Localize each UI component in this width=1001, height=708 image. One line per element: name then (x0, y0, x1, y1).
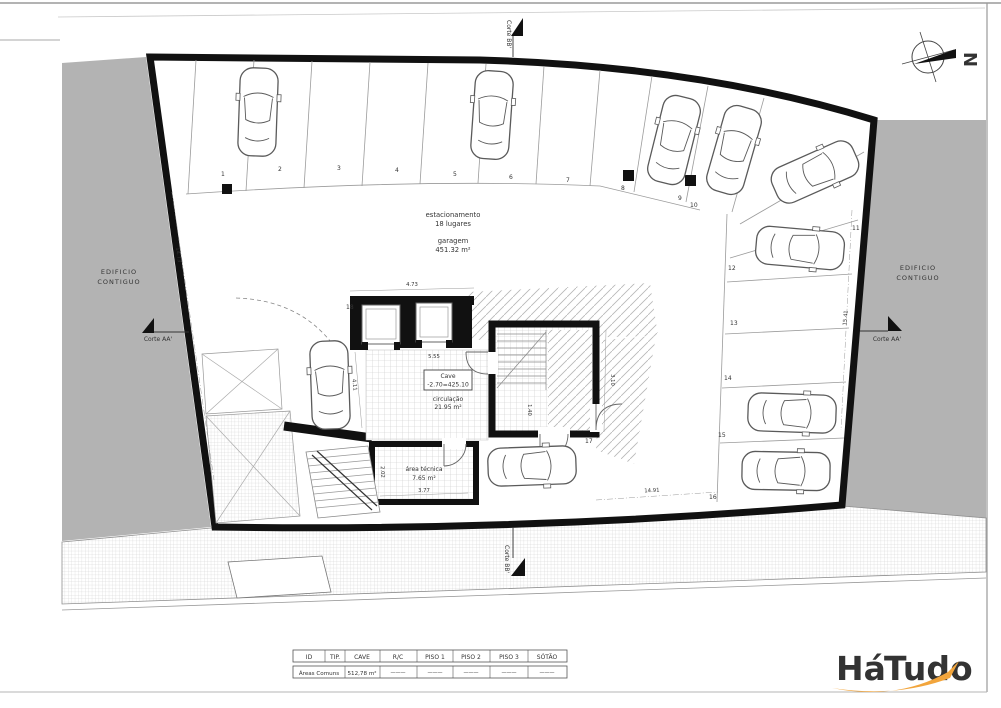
elevator-door-jamb (416, 340, 422, 348)
table-row-label: Áreas Comuns (299, 670, 339, 677)
elevator-cab-1 (362, 305, 400, 344)
space-number: 5 (453, 171, 457, 178)
circulation-area: Cave -2.70=425.10 circulação 21.95 m² (366, 350, 488, 440)
table-empty-cell: ——— (391, 670, 406, 676)
space-number: 2 (278, 166, 282, 173)
car (306, 340, 354, 430)
dim-corridor: 1.40 (526, 404, 532, 416)
driveway-apron (228, 556, 331, 598)
table-empty-cell: ——— (502, 670, 517, 676)
space-number: 1 (221, 171, 225, 178)
north-pointer (914, 49, 956, 64)
label-garagem-area: 451.32 m² (435, 246, 471, 254)
dim-below-elevators: 5.55 (428, 354, 440, 360)
label-corte-bb-top: Corte BB' (505, 20, 512, 49)
column (222, 184, 232, 194)
label-corte-aa-left: Corte AA' (144, 336, 173, 343)
table-header-tip: TIP. (329, 654, 340, 661)
label-cave-level: -2.70=425.10 (427, 382, 469, 389)
door-opening (538, 427, 570, 440)
elevator-cab-2 (416, 303, 452, 342)
space-number: 9 (678, 195, 682, 202)
table-empty-cell: ——— (540, 670, 555, 676)
label-estacionamento: estacionamento (426, 211, 481, 219)
space-number: 15 (718, 432, 726, 439)
table-empty-cell: ——— (464, 670, 479, 676)
circulation-floor (366, 350, 488, 440)
space-number: 16 (709, 494, 717, 501)
table-header-piso1: PISO 1 (425, 654, 445, 661)
dim-ramp: 4.11 (350, 379, 357, 391)
elevator-door-jamb (446, 340, 452, 348)
logo-word1: Há (836, 649, 886, 688)
label-garagem: garagem (438, 237, 469, 245)
space-number: 17 (585, 438, 593, 445)
label-circulacao: circulação (433, 396, 464, 403)
car (234, 67, 282, 157)
table-header-rc: R/C (393, 654, 403, 661)
dim-area-tecnica-width: 3.77 (418, 488, 430, 494)
door-opening (442, 438, 466, 449)
site-boundary-line (58, 8, 985, 17)
elevator-door-jamb (362, 342, 368, 350)
space-number: 7 (566, 177, 570, 184)
drawing-sheet: EDIFICIO CONTIGUO EDIFICIO CONTIGUO (0, 0, 1001, 708)
elevator-wall-right (452, 296, 472, 348)
space-number: 8 (621, 185, 625, 192)
label-corte-bb-bottom: Corte BB' (503, 545, 510, 574)
column (685, 175, 696, 186)
areas-table: ID TIP. CAVE R/C PISO 1 PISO 2 PISO 3 SÓ… (293, 650, 567, 678)
elevator-wall-mid (400, 296, 416, 348)
door-opening (488, 352, 498, 374)
stair-flight (306, 446, 380, 518)
space-number: 3 (337, 165, 341, 172)
dim-elevators-width: 4.73 (406, 282, 418, 288)
elevator-door-jamb (394, 342, 400, 350)
dim-tecnica-side: 2.02 (379, 466, 385, 478)
floor-plan: EDIFICIO CONTIGUO EDIFICIO CONTIGUO (0, 0, 1001, 708)
table-header-cave: CAVE (354, 654, 370, 661)
table-header-id: ID (306, 654, 313, 661)
edificio-contiguo-left-line2: CONTIGUO (97, 278, 140, 286)
space-number: 6 (509, 174, 513, 181)
space-number: 13 (730, 320, 738, 327)
label-corte-aa-right: Corte AA' (873, 336, 902, 343)
north-arrow: N (902, 32, 980, 82)
car (747, 389, 837, 437)
space-number: 18 (346, 304, 354, 311)
label-lugares: 18 lugares (435, 220, 471, 228)
table-empty-cell: ——— (428, 670, 443, 676)
label-area-tecnica: área técnica (405, 466, 442, 473)
hatudo-logo: Há Tudo (832, 649, 973, 692)
north-letter: N (959, 52, 980, 67)
space-number: 11 (852, 225, 860, 232)
label-circulacao-area: 21.95 m² (434, 404, 462, 411)
car (742, 448, 831, 495)
edificio-contiguo-right-line1: EDIFICIO (900, 264, 936, 272)
label-area-tecnica-area: 7.65 m² (412, 475, 436, 482)
table-header-sotao: SÓTÃO (537, 654, 558, 661)
column (623, 170, 634, 181)
dim-bottom-span: 14.91 (644, 488, 659, 495)
dim-stair-core: 3.10 (609, 374, 615, 386)
elevator-block (350, 296, 474, 350)
space-number: 14 (724, 375, 732, 382)
edificio-contiguo-left-line1: EDIFICIO (101, 268, 137, 276)
stair-up-run (548, 330, 592, 430)
space-number: 4 (395, 167, 399, 174)
space-number: 12 (728, 265, 736, 272)
edificio-contiguo-right-line2: CONTIGUO (896, 274, 939, 282)
space-number: 10 (690, 202, 698, 209)
label-cave: Cave (440, 373, 455, 380)
table-header-piso2: PISO 2 (461, 654, 481, 661)
table-header-piso3: PISO 3 (499, 654, 519, 661)
table-cave-value: 512,78 m² (347, 670, 376, 677)
car (487, 442, 577, 490)
